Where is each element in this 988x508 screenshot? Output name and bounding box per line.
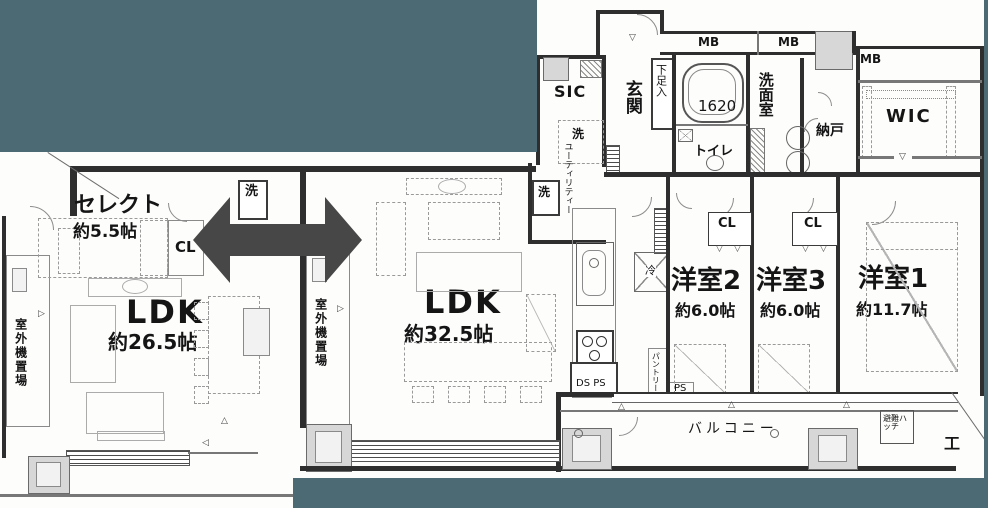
steel-column-symbol: 工 xyxy=(944,436,960,453)
bedroom2-name: 洋室2 xyxy=(671,268,741,295)
floorplan-composite: 室外機置場 ▷ セレクト 約5.5帖 CL 洗 LDK 約26.5帖 △ ◁ M… xyxy=(0,0,988,508)
closet-label: CL xyxy=(175,240,196,256)
balcony-rail xyxy=(188,452,258,454)
cabinet xyxy=(243,308,270,356)
ldk-name: LDK xyxy=(126,296,204,330)
wic-label: WIC xyxy=(886,108,932,127)
ds-ps-label: DS PS xyxy=(576,379,606,390)
vent-mark-icon: ▷ xyxy=(337,305,344,314)
wall xyxy=(672,55,676,175)
closet-label: CL xyxy=(718,217,736,231)
washroom-label: 洗面室 xyxy=(757,72,773,117)
door-mark-icon: ▽ xyxy=(716,245,723,254)
mb-label: MB xyxy=(698,36,719,49)
vent-mark-icon: △ xyxy=(843,401,850,410)
washer-label: 洗 xyxy=(245,185,258,199)
shaft-box xyxy=(815,31,853,70)
wall xyxy=(757,31,759,55)
closet-label: CL xyxy=(804,217,822,231)
washer-label: 洗 xyxy=(572,128,584,141)
wall xyxy=(596,10,600,58)
shoe-cabinet-label: 下足入 xyxy=(655,64,667,97)
wall xyxy=(858,80,982,83)
corner-sink xyxy=(678,129,693,142)
sofa-outline xyxy=(86,392,164,434)
sink-basin xyxy=(582,250,606,296)
chair-outline xyxy=(194,358,209,376)
door-mark-icon: ▽ xyxy=(734,245,741,254)
entrance-label: 玄関 xyxy=(622,80,640,114)
wall xyxy=(666,172,670,394)
corner-planter-inner xyxy=(315,431,342,463)
planter-inner xyxy=(818,435,847,462)
shaft-box xyxy=(543,57,569,81)
chair-outline xyxy=(520,386,542,403)
bath-size-label: 1620 xyxy=(698,99,736,115)
chair-outline xyxy=(484,386,506,403)
door-mark-icon: ▽ xyxy=(629,34,636,43)
utility-label: ユーティリティー xyxy=(562,142,571,214)
chair-outline xyxy=(448,386,470,403)
utility-washer-label: 洗 xyxy=(538,186,550,199)
balcony-label: バルコニー xyxy=(688,422,778,437)
mb-label: MB xyxy=(778,36,799,49)
outdoor-unit xyxy=(12,268,27,292)
linen-column xyxy=(750,128,765,176)
planter-inner xyxy=(572,435,601,462)
chair-outline xyxy=(194,386,209,404)
planter-inner xyxy=(36,462,61,487)
window-band xyxy=(612,392,958,403)
wall xyxy=(75,166,303,172)
wic-side xyxy=(946,86,956,158)
vent-mark-icon: ◁ xyxy=(202,439,209,448)
wall xyxy=(858,156,894,159)
closet-hanger xyxy=(140,220,168,276)
refrigerator-label: 冷 xyxy=(645,265,656,277)
wall xyxy=(852,46,984,49)
bedroom3-name: 洋室3 xyxy=(756,268,826,295)
table-oval xyxy=(438,179,466,194)
table-oval xyxy=(122,279,148,294)
wall xyxy=(750,172,754,394)
wall xyxy=(0,494,293,497)
cabinet-outline xyxy=(428,202,500,240)
bedroom2-size: 約6.0帖 xyxy=(675,303,735,320)
ldk-size: 約26.5帖 xyxy=(108,332,197,353)
door-mark-icon: ▽ xyxy=(899,153,906,162)
hose-bib xyxy=(574,429,583,438)
sliding-window xyxy=(66,450,190,466)
sofa-outline xyxy=(416,252,522,292)
chair-outline xyxy=(194,302,209,320)
vent-mark-icon: △ xyxy=(728,401,735,410)
bed-outline xyxy=(758,344,810,394)
burner xyxy=(589,350,600,361)
hatch-area xyxy=(580,60,602,78)
wall xyxy=(676,124,748,126)
storeroom-label: 納戸 xyxy=(816,124,844,139)
outdoor-unit-label: 室外機置場 xyxy=(14,318,27,388)
evac-hatch-label: 避難ハッチ xyxy=(883,415,911,432)
bedroom3-size: 約6.0帖 xyxy=(760,303,820,320)
storage-outline xyxy=(526,294,556,352)
faucet xyxy=(589,258,599,268)
burner xyxy=(596,336,607,347)
door-mark-icon: ▽ xyxy=(820,245,827,254)
mb-label: MB xyxy=(860,53,881,66)
wardrobe-outline xyxy=(376,202,406,276)
laundry-bracket xyxy=(97,431,165,441)
wic-side xyxy=(862,86,872,158)
entry-step xyxy=(606,145,620,175)
wall xyxy=(302,166,536,172)
shelf-outline xyxy=(70,305,116,383)
wall xyxy=(596,10,662,14)
door-mark-icon: ▽ xyxy=(802,245,809,254)
outdoor-unit xyxy=(312,258,327,282)
wall xyxy=(912,156,982,159)
wall xyxy=(836,172,840,394)
select-room-name: セレクト xyxy=(74,194,162,217)
wall xyxy=(556,392,614,397)
sic-label: SIC xyxy=(554,84,586,101)
chair-outline xyxy=(412,386,434,403)
top-overlay xyxy=(0,0,537,152)
burner xyxy=(582,336,593,347)
select-room-size: 約5.5帖 xyxy=(73,224,137,242)
outdoor-unit-label: 室外機置場 xyxy=(314,298,327,368)
bed-pillow xyxy=(866,222,958,250)
chair-outline xyxy=(194,330,209,348)
vent-mark-icon: △ xyxy=(618,403,625,412)
vent-mark-icon: ▷ xyxy=(38,310,45,319)
wic-shelf xyxy=(866,90,956,99)
ldk-sliding-window xyxy=(350,440,560,462)
hose-bib xyxy=(770,429,779,438)
vent-mark-icon: △ xyxy=(221,417,228,426)
toilet-bowl xyxy=(706,155,724,171)
bed-outline xyxy=(674,344,726,394)
right-edge-overlay xyxy=(984,0,988,478)
bottom-overlay xyxy=(293,478,988,508)
pantry-label: パントリー xyxy=(651,352,659,392)
wall xyxy=(604,172,984,177)
